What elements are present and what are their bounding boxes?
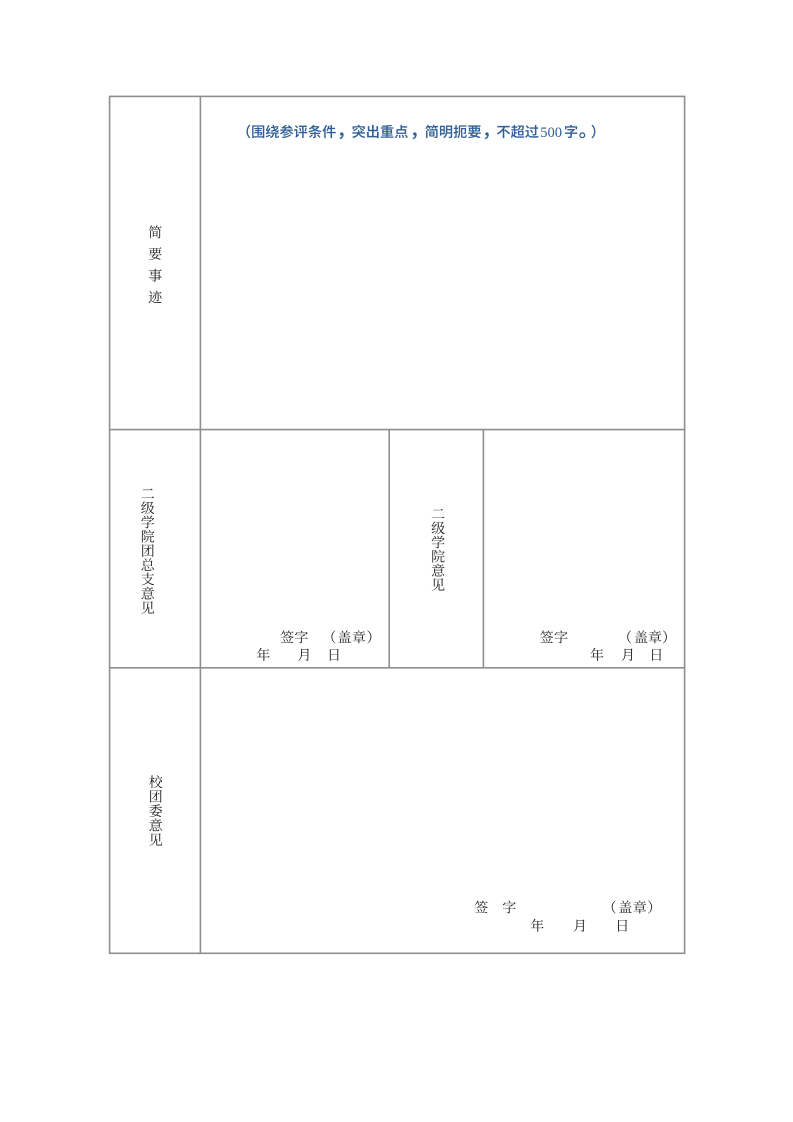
svg-text:500: 500	[540, 125, 562, 141]
